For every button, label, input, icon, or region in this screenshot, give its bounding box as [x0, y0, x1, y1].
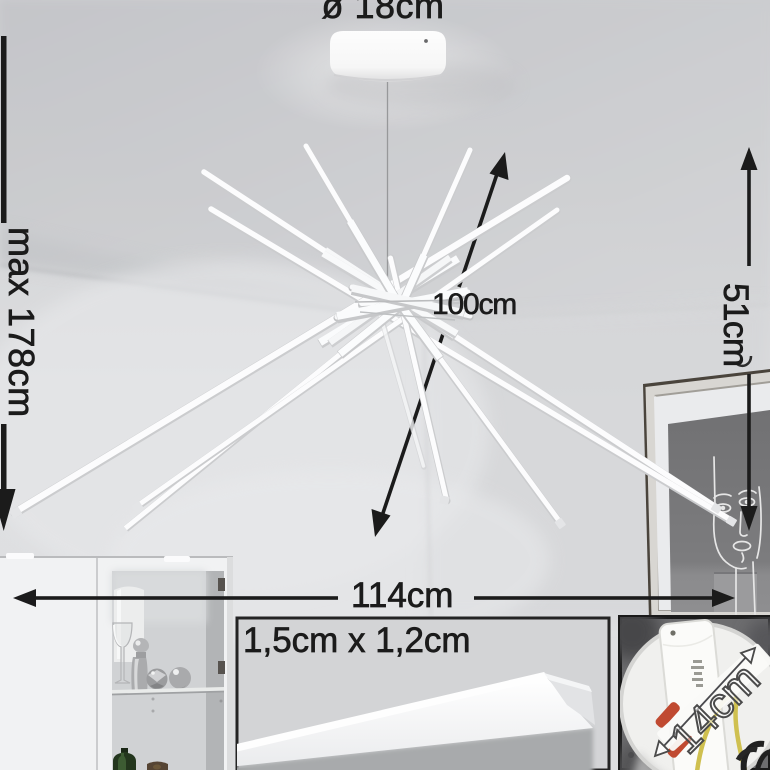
svg-text:ø 18cm: ø 18cm [321, 0, 444, 26]
svg-text:max 178cm: max 178cm [1, 227, 42, 418]
svg-text:114cm: 114cm [351, 576, 453, 615]
svg-text:1,5cm x 1,2cm: 1,5cm x 1,2cm [243, 621, 471, 660]
svg-text:51cm: 51cm [716, 283, 755, 367]
svg-text:100cm: 100cm [432, 288, 516, 321]
